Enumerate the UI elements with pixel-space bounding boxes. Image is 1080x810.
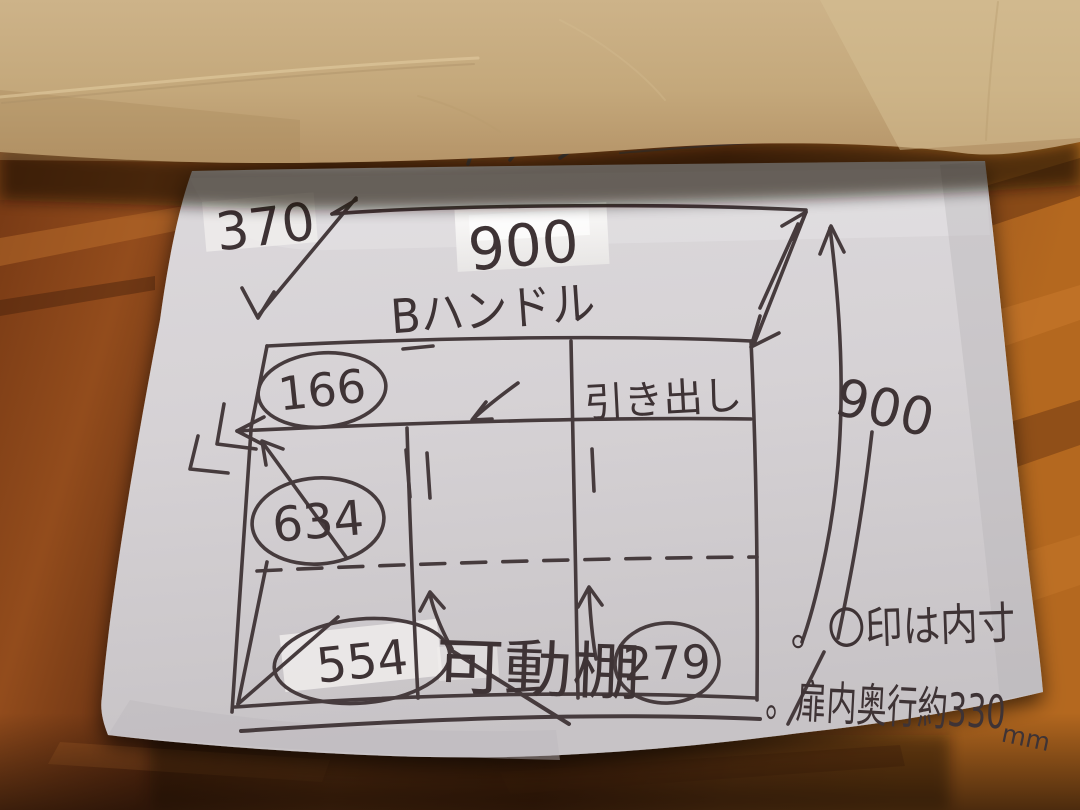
kraft-envelope xyxy=(0,0,1080,210)
value-634-circled: 634 xyxy=(270,490,366,554)
value-554-circled: 554 xyxy=(314,629,411,694)
sketch-photo-canvas: 370 900 Bハンドル 166 引き出し 900 634 554 279 可… xyxy=(0,0,1080,810)
label-drawer: 引き出し xyxy=(583,373,743,427)
label-movable-shelf: 可動棚 xyxy=(434,629,641,709)
photo-hand-drawn-dimension-sketch: 370 900 Bハンドル 166 引き出し 900 634 554 279 可… xyxy=(0,0,1080,810)
dimension-width-900: 900 xyxy=(465,207,581,284)
note-circled-are-inner-dimensions: 。〇印は内寸 xyxy=(789,598,1016,657)
value-166-circled: 166 xyxy=(276,359,369,422)
